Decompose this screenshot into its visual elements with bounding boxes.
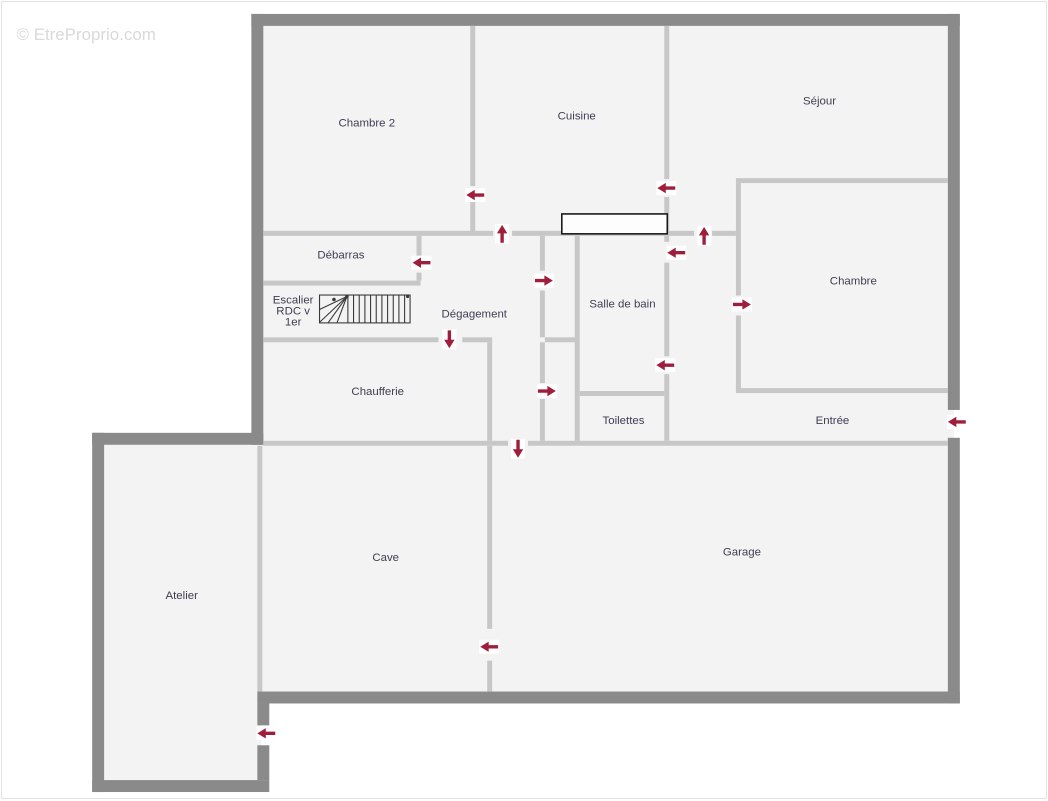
door-arrow-icon [537,384,557,398]
stairs-label-line3: 1er [285,316,302,328]
door-arrow-icon [256,726,276,740]
door-arrow-icon [495,224,509,244]
room-label-cave: Cave [372,552,399,564]
door-arrow-icon [511,439,525,459]
room-label-cuisine: Cuisine [558,110,596,122]
room-label-atelier: Atelier [166,590,199,602]
floorplan-svg: Chambre 2 Cuisine Séjour Débarras Dégage… [2,2,1046,798]
door-arrow-icon [666,246,686,260]
door-arrow-icon [412,256,432,270]
door-arrow-icon [655,358,675,372]
door-arrow-icon [732,298,752,312]
room-label-toilettes: Toilettes [603,415,645,427]
room-label-chambre2: Chambre 2 [338,117,395,129]
door-arrow-icon [442,329,456,349]
room-label-entree: Entrée [816,415,850,427]
door-arrow-icon [534,274,554,288]
room-label-garage: Garage [723,546,761,558]
door-arrow-icon [947,415,967,429]
door-arrow-icon [479,640,499,654]
room-label-chambre: Chambre [830,276,877,288]
floorplan-page: Chambre 2 Cuisine Séjour Débarras Dégage… [1,1,1047,799]
door-arrow-icon [656,181,676,195]
room-label-salle-de-bain: Salle de bain [589,298,655,310]
room-label-chaufferie: Chaufferie [351,386,404,398]
kitchen-counter [562,214,667,234]
watermark: © EtreProprio.com [17,25,156,44]
door-arrow-icon [465,188,485,202]
room-label-sejour: Séjour [803,96,836,108]
room-label-degagement: Dégagement [442,308,508,320]
door-arrow-icon [697,226,711,246]
room-label-debarras: Débarras [317,250,364,262]
